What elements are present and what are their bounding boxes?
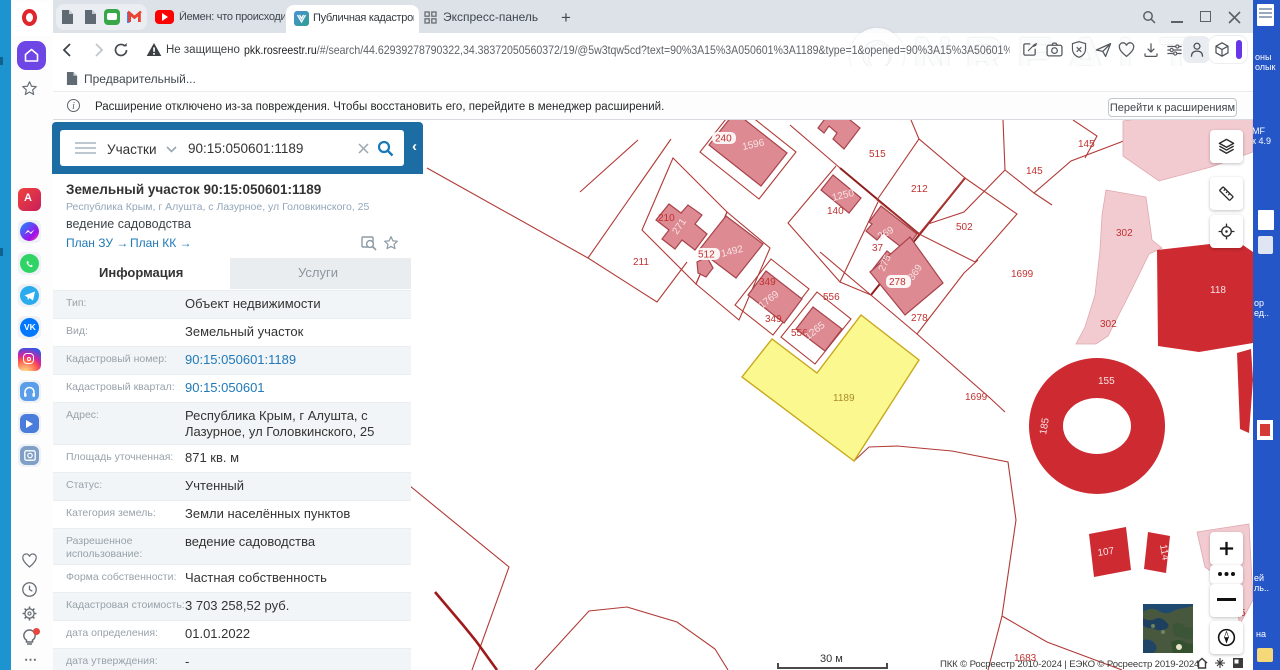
svg-text:278: 278 xyxy=(911,313,928,324)
svg-text:502: 502 xyxy=(956,222,973,233)
svg-text:240: 240 xyxy=(715,134,732,145)
svg-text:278: 278 xyxy=(889,277,906,288)
svg-text:155: 155 xyxy=(1098,376,1115,387)
svg-text:1699: 1699 xyxy=(1011,269,1034,280)
svg-text:37: 37 xyxy=(872,243,884,254)
svg-text:210: 210 xyxy=(658,213,675,224)
svg-text:140: 140 xyxy=(827,206,844,217)
svg-text:349: 349 xyxy=(759,277,776,288)
svg-text:211: 211 xyxy=(633,257,649,268)
svg-text:349: 349 xyxy=(765,314,782,325)
svg-text:515: 515 xyxy=(869,149,886,160)
svg-text:512: 512 xyxy=(698,250,715,261)
svg-text:556: 556 xyxy=(823,292,840,303)
svg-text:1699: 1699 xyxy=(965,392,988,403)
svg-text:145: 145 xyxy=(1026,166,1043,177)
svg-text:118: 118 xyxy=(1210,285,1226,296)
svg-text:145: 145 xyxy=(1078,139,1095,150)
svg-text:302: 302 xyxy=(1100,319,1117,330)
svg-text:212: 212 xyxy=(911,184,928,195)
svg-text:1189: 1189 xyxy=(833,393,855,404)
svg-text:302: 302 xyxy=(1116,228,1133,239)
